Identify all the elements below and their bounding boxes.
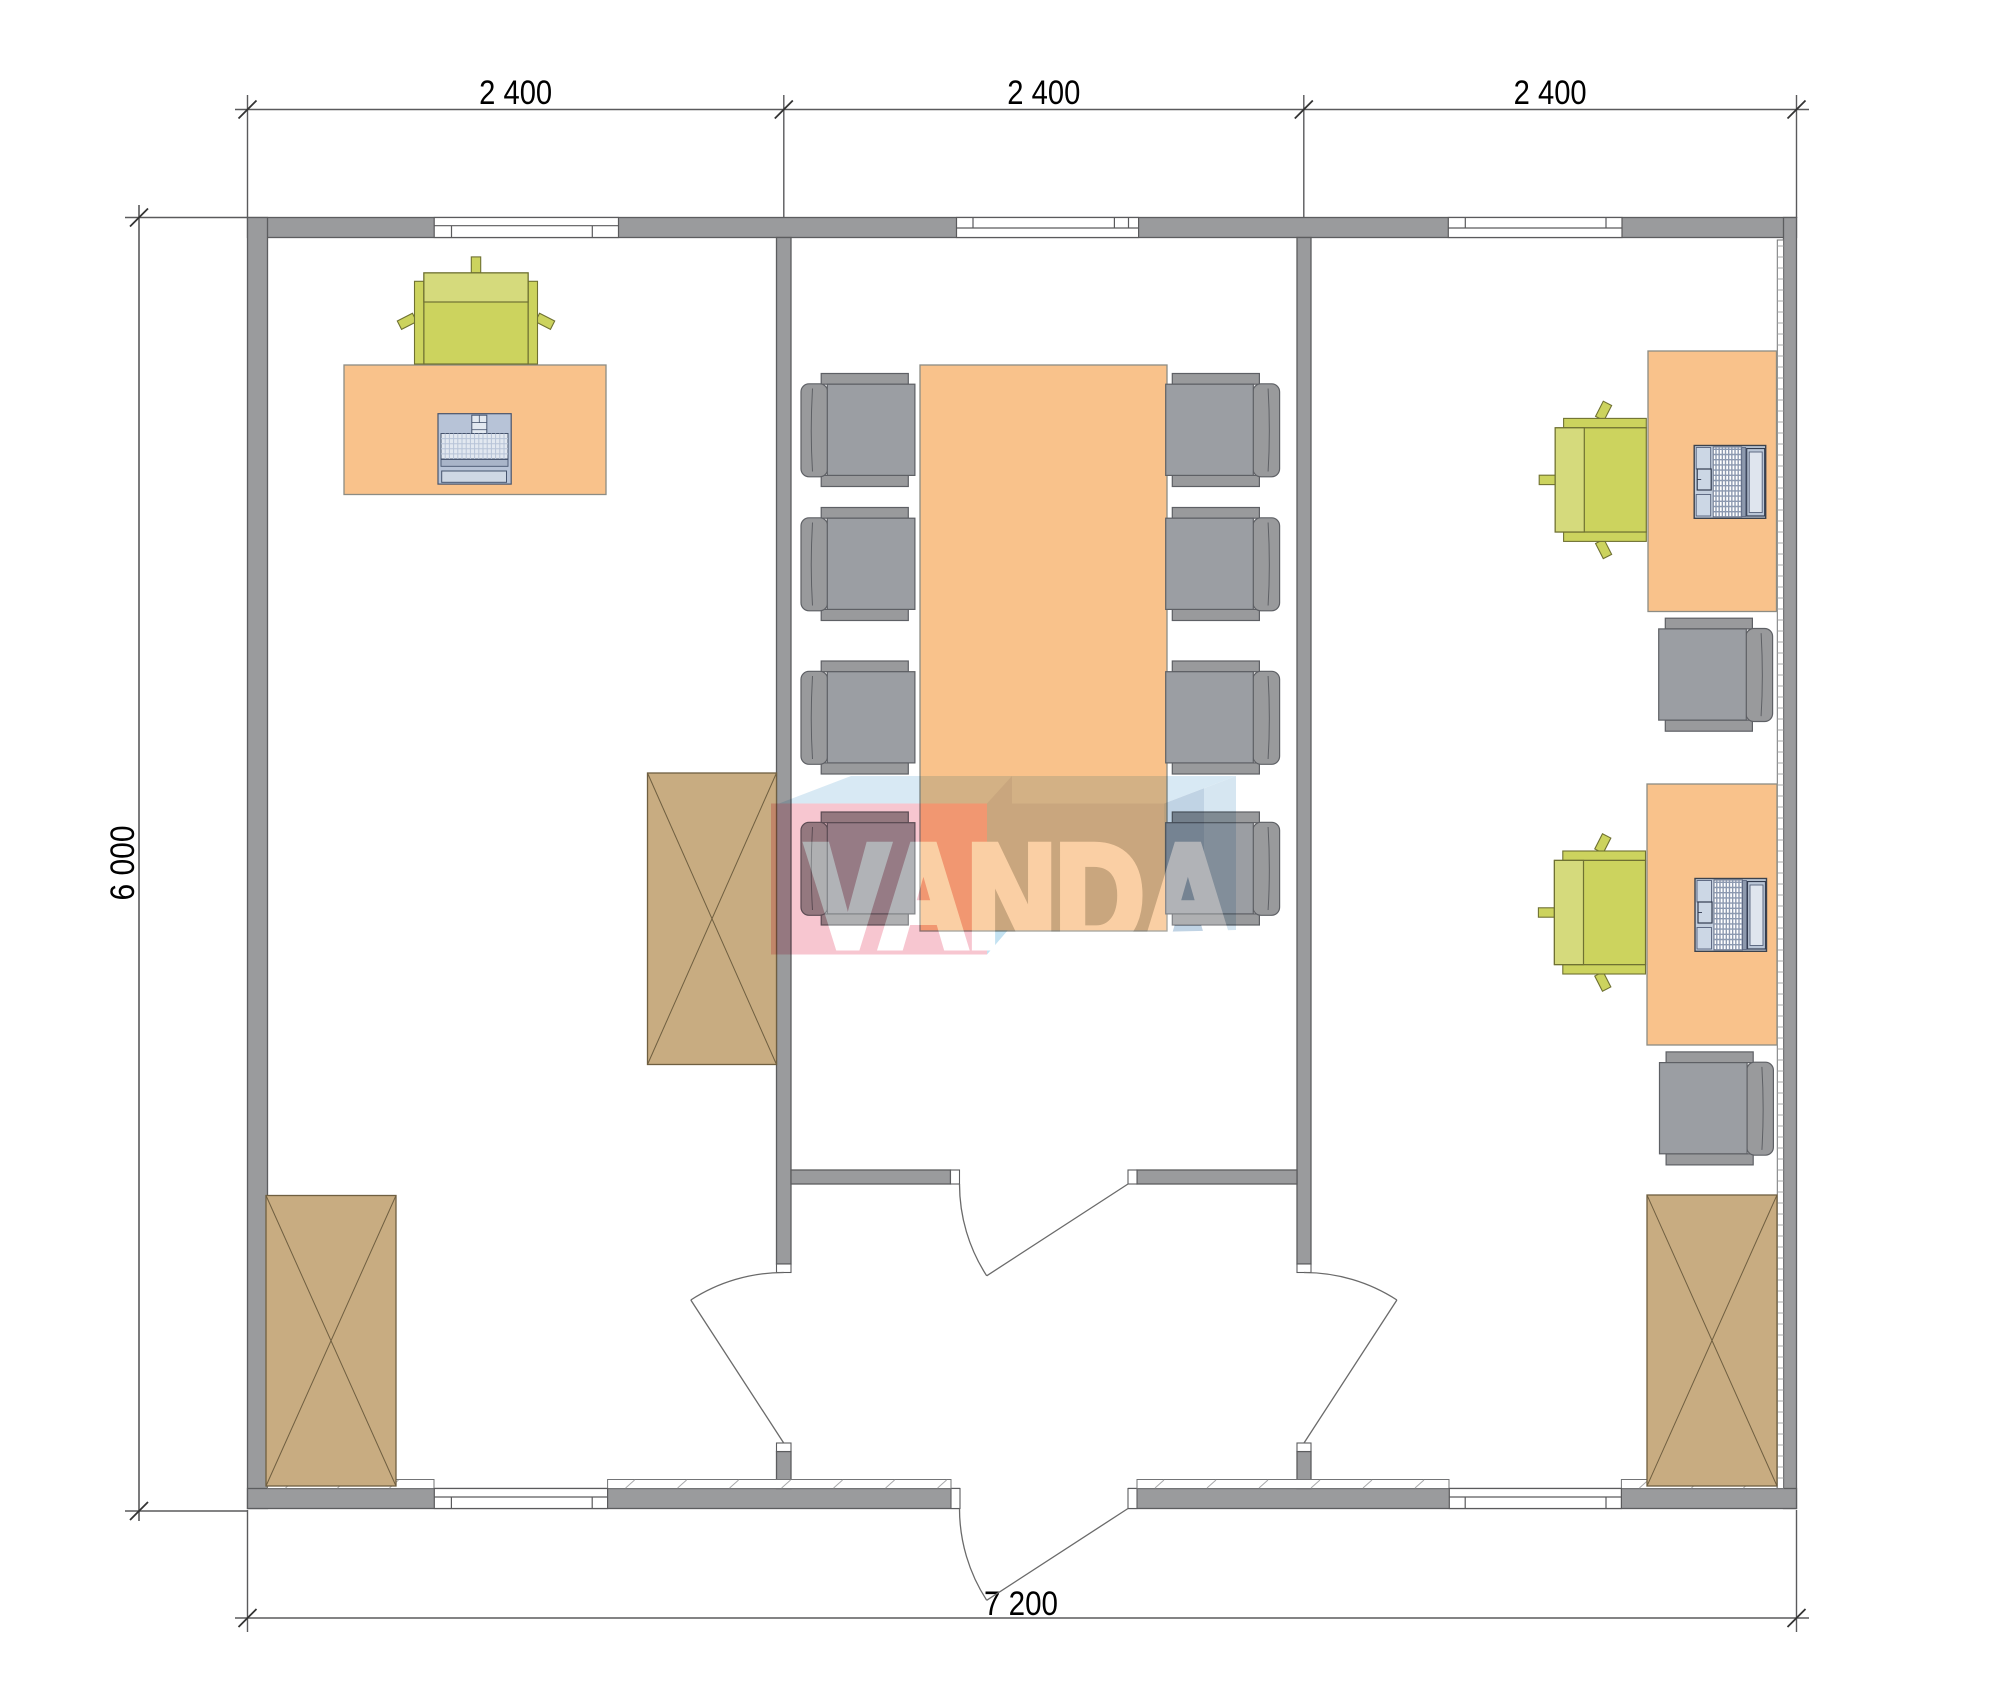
svg-text:6 000: 6 000: [104, 826, 142, 901]
svg-text:2 400: 2 400: [479, 74, 552, 112]
svg-text:7 200: 7 200: [984, 1585, 1058, 1623]
svg-text:2 400: 2 400: [1514, 74, 1587, 112]
svg-text:2 400: 2 400: [1007, 74, 1080, 112]
